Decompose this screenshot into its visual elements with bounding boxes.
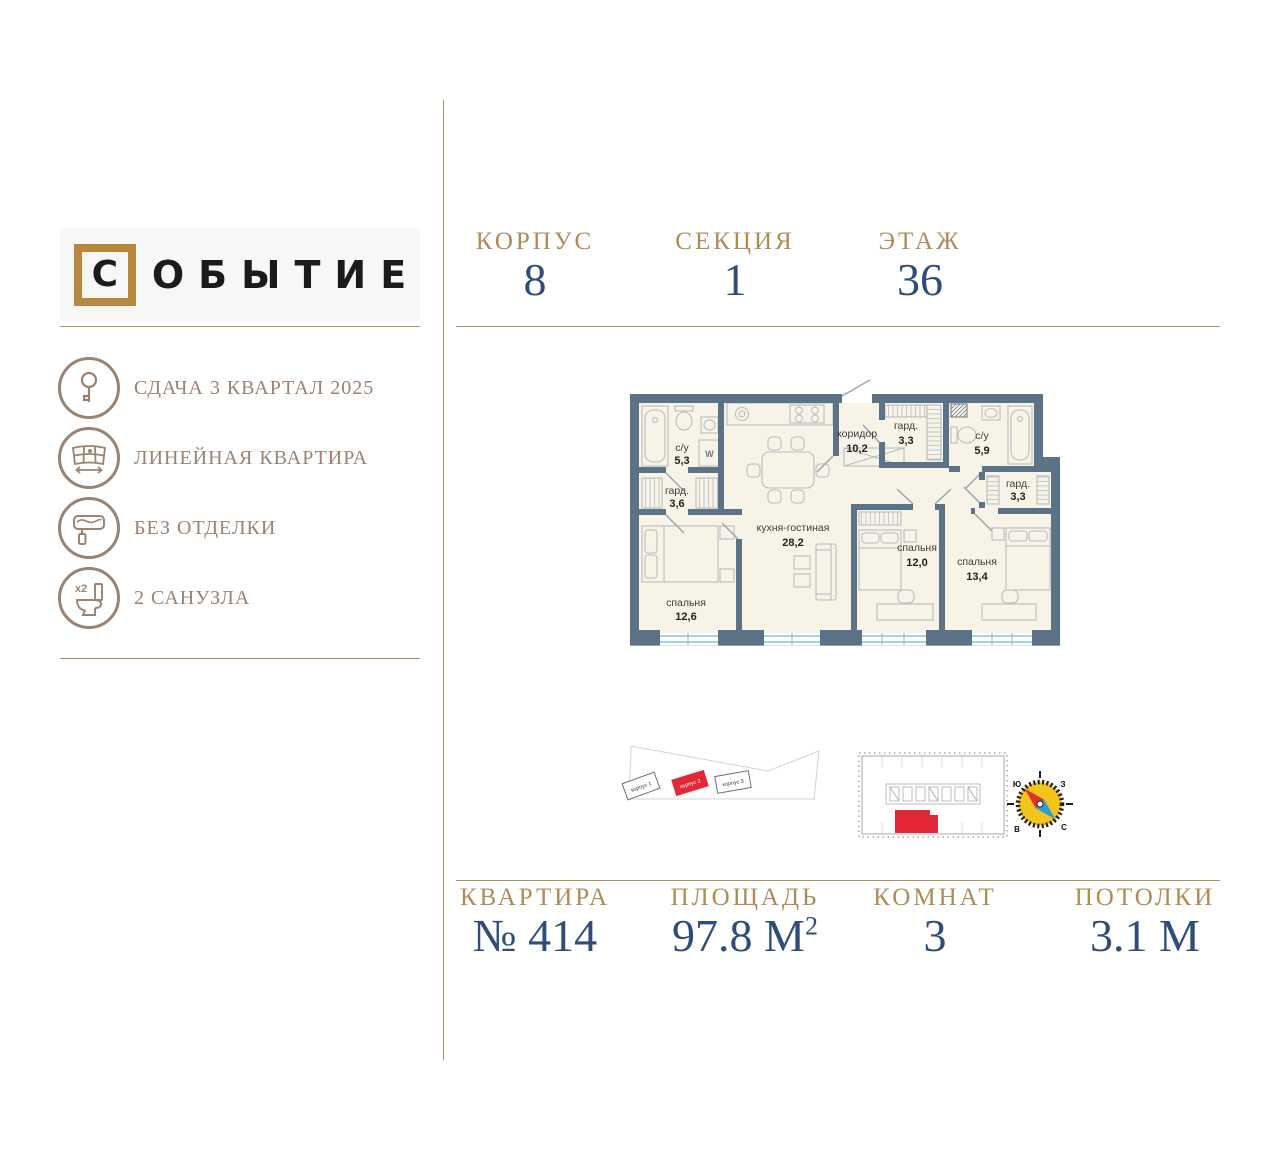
svg-text:спальня: спальня: [897, 542, 937, 554]
apartment-card-page: { "brand": {"first_letter": "С", "rest_l…: [0, 0, 1280, 1160]
sidebar-bottom-rule: [60, 658, 420, 659]
feature-label: ЛИНЕЙНАЯ КВАРТИРА: [134, 447, 368, 470]
stat-value: 1: [675, 256, 794, 304]
svg-text:с/у: с/у: [975, 430, 989, 442]
svg-text:гард.: гард.: [665, 485, 689, 497]
stat-label: КОМНАТ: [873, 884, 997, 912]
stat-label: КВАРТИРА: [460, 884, 610, 912]
compass-north-label: С: [1061, 823, 1067, 832]
feature-list: СДАЧА 3 КВАРТАЛ 2025 ЛИНЕЙНАЯ КВАРТИРА: [58, 359, 420, 627]
feature-layout: ЛИНЕЙНАЯ КВАРТИРА: [58, 429, 420, 487]
svg-text:5,9: 5,9: [974, 445, 989, 457]
stat-etazh: ЭТАЖ 36: [879, 228, 962, 304]
stat-value: 3: [873, 912, 997, 960]
stat-label: ПОТОЛКИ: [1075, 884, 1216, 912]
stat-sekciya: СЕКЦИЯ 1: [675, 228, 794, 304]
stat-label: ЭТАЖ: [879, 228, 962, 256]
logo-first-letter: С: [92, 257, 118, 293]
svg-text:3,6: 3,6: [669, 498, 684, 510]
floor-plan-svg: W: [630, 374, 1060, 646]
stat-label: СЕКЦИЯ: [675, 228, 794, 256]
feature-label: БЕЗ ОТДЕЛКИ: [134, 517, 276, 540]
header-rule: [456, 326, 1220, 327]
stat-rooms: КОМНАТ 3: [873, 884, 997, 960]
sidebar-top-rule: [60, 326, 420, 327]
svg-text:кухня-гостиная: кухня-гостиная: [757, 522, 830, 534]
sq-meter-sup: 2: [805, 912, 818, 941]
svg-text:12,6: 12,6: [675, 611, 696, 623]
svg-text:коридор: коридор: [837, 428, 877, 440]
svg-text:12,0: 12,0: [906, 557, 927, 569]
svg-text:3,3: 3,3: [1010, 491, 1025, 503]
feature-bathrooms: x2 2 САНУЗЛА: [58, 569, 420, 627]
stat-apartment-number: КВАРТИРА № 414: [460, 884, 610, 960]
stat-value: 97.8 М2: [671, 912, 820, 960]
feature-label: СДАЧА 3 КВАРТАЛ 2025: [134, 377, 374, 400]
stat-value: 8: [476, 256, 594, 304]
compass-icon: Ю З В С: [1006, 770, 1074, 838]
svg-text:10,2: 10,2: [846, 443, 867, 455]
stat-area: ПЛОЩАДЬ 97.8 М2: [671, 884, 820, 960]
feature-finishing: БЕЗ ОТДЕЛКИ: [58, 499, 420, 557]
logo-frame-icon: С: [74, 244, 136, 306]
stat-value: 36: [879, 256, 962, 304]
svg-text:с/у: с/у: [675, 442, 689, 454]
svg-text:спальня: спальня: [957, 556, 997, 568]
svg-text:13,4: 13,4: [966, 571, 988, 583]
compass-south-label: Ю: [1013, 780, 1021, 789]
site-plan: корпус 1 корпус 2 корпус 3: [618, 740, 830, 848]
feature-label: 2 САНУЗЛА: [134, 587, 250, 610]
floor-plate-diagram: [856, 750, 1012, 844]
stat-ceilings: ПОТОЛКИ 3.1 М: [1075, 884, 1216, 960]
stat-label: КОРПУС: [476, 228, 594, 256]
key-icon: [58, 357, 120, 419]
brand-logo: С ОБЫТИЕ: [60, 228, 420, 322]
svg-text:гард.: гард.: [1006, 478, 1030, 490]
room-label-bathroom1: с/у 5,3: [674, 442, 689, 467]
svg-text:28,2: 28,2: [782, 537, 803, 549]
footer-rule: [456, 880, 1220, 881]
toilet-icon: x2: [58, 567, 120, 629]
stat-korpus: КОРПУС 8: [476, 228, 594, 304]
svg-text:гард.: гард.: [894, 420, 918, 432]
compass-east-label: В: [1014, 825, 1020, 834]
vent-shaft: [951, 404, 967, 417]
stat-value: № 414: [460, 912, 610, 960]
stat-value: 3.1 М: [1075, 912, 1216, 960]
vertical-divider: [443, 100, 444, 1060]
svg-text:спальня: спальня: [666, 597, 706, 609]
stat-label: ПЛОЩАДЬ: [671, 884, 820, 912]
toilet-x2-badge: x2: [75, 583, 87, 595]
paint-roller-icon: [58, 497, 120, 559]
svg-text:3,3: 3,3: [898, 435, 913, 447]
svg-text:5,3: 5,3: [674, 455, 689, 467]
compass-west-label: З: [1060, 780, 1065, 789]
svg-text:W: W: [705, 449, 714, 459]
feature-completion: СДАЧА 3 КВАРТАЛ 2025: [58, 359, 420, 417]
panorama-window-icon: [58, 427, 120, 489]
logo-text: ОБЫТИЕ: [152, 256, 420, 294]
